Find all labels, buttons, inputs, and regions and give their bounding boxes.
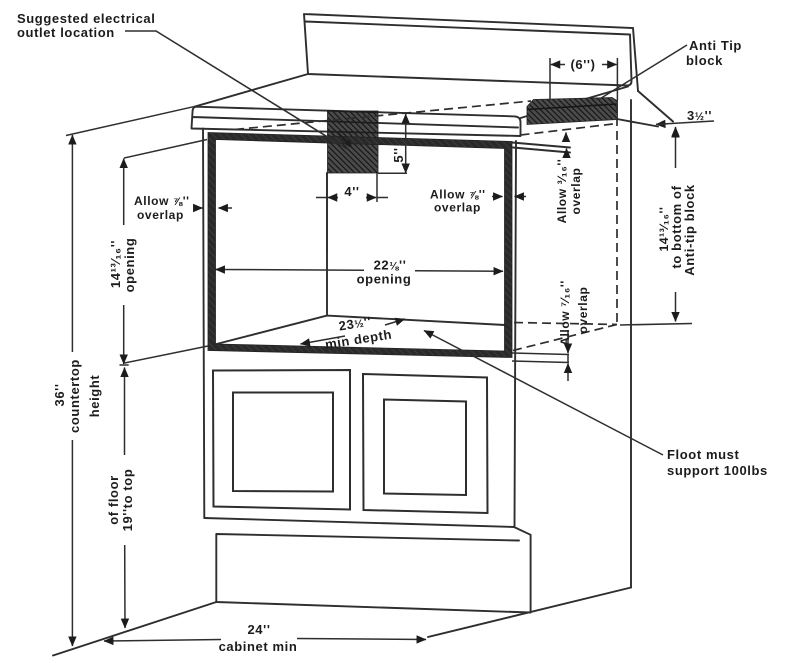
svg-text:countertop: countertop	[67, 359, 82, 433]
svg-text:of floor: of floor	[106, 475, 121, 525]
svg-text:overlap: overlap	[137, 208, 184, 222]
svg-text:opening: opening	[357, 272, 412, 287]
svg-text:36'': 36''	[52, 383, 67, 406]
svg-text:Anti Tip: Anti Tip	[689, 38, 742, 53]
svg-text:Suggested electrical: Suggested electrical	[17, 11, 155, 26]
svg-text:cabinet min: cabinet min	[219, 639, 298, 654]
svg-text:24'': 24''	[247, 622, 270, 637]
svg-text:Allow ⁷⁄₁₆'': Allow ⁷⁄₁₆''	[558, 280, 572, 346]
svg-text:opening: opening	[122, 238, 137, 293]
svg-text:outlet location: outlet location	[17, 25, 115, 40]
svg-text:support 100lbs: support 100lbs	[667, 463, 768, 478]
svg-text:overlap: overlap	[434, 201, 481, 215]
svg-text:19''to top: 19''to top	[120, 469, 135, 532]
svg-text:22⅛'': 22⅛''	[374, 258, 407, 273]
svg-text:block: block	[686, 53, 723, 68]
svg-text:overlap: overlap	[569, 168, 583, 215]
svg-text:Anti-tip block: Anti-tip block	[682, 184, 697, 276]
svg-text:5'': 5''	[391, 147, 406, 162]
svg-text:(6''): (6'')	[570, 57, 595, 72]
svg-text:Allow ⅞'': Allow ⅞''	[430, 188, 486, 202]
svg-text:height: height	[87, 375, 102, 418]
svg-text:Allow ³⁄₁₆'': Allow ³⁄₁₆''	[555, 159, 569, 224]
svg-text:overlap: overlap	[576, 287, 590, 334]
svg-text:Floot must: Floot must	[667, 447, 740, 462]
svg-text:4'': 4''	[344, 184, 359, 199]
svg-text:14¹³⁄₁₆'': 14¹³⁄₁₆''	[108, 240, 123, 288]
svg-text:3½'': 3½''	[687, 108, 712, 123]
svg-text:Allow ⅞'': Allow ⅞''	[134, 194, 190, 208]
